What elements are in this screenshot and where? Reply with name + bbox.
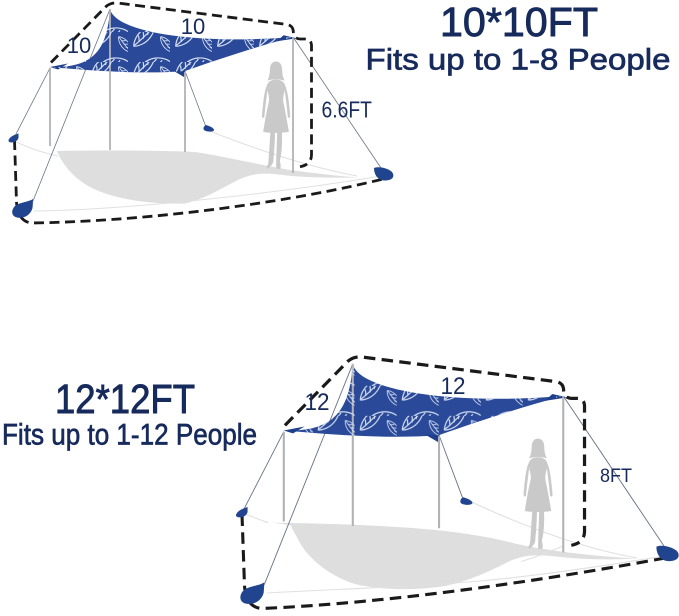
svg-text:12: 12 [305,389,330,416]
svg-text:12: 12 [441,373,466,400]
svg-text:6.6FT: 6.6FT [322,97,373,123]
svg-text:10: 10 [181,14,206,39]
svg-text:10: 10 [67,33,92,58]
svg-text:12*12FT: 12*12FT [55,376,195,422]
svg-text:Fits up to 1-8 People: Fits up to 1-8 People [366,44,671,77]
svg-text:10*10FT: 10*10FT [440,0,598,45]
svg-text:8FT: 8FT [600,466,632,487]
svg-text:Fits up to 1-12 People: Fits up to 1-12 People [2,419,257,452]
